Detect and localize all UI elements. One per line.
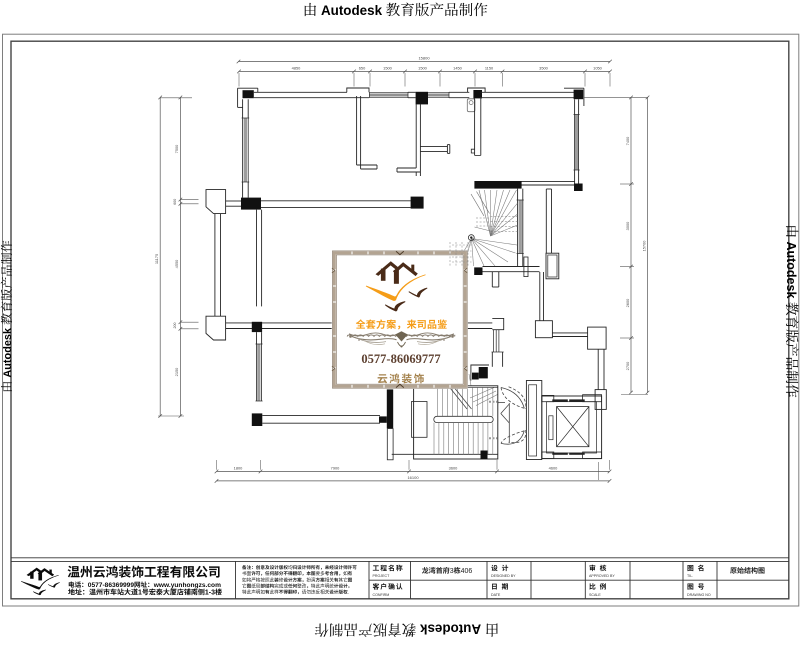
svg-text:全套方案，来司品鉴: 全套方案，来司品鉴 bbox=[356, 316, 448, 331]
svg-text:600: 600 bbox=[173, 199, 177, 205]
svg-text:设 计: 设 计 bbox=[491, 563, 509, 573]
svg-text:7900: 7900 bbox=[331, 466, 340, 471]
svg-text:4550: 4550 bbox=[174, 259, 179, 268]
svg-text:龙湾首府3栋406: 龙湾首府3栋406 bbox=[422, 566, 473, 576]
svg-text:7400: 7400 bbox=[625, 136, 630, 145]
svg-text:特此声明如有此样不得翻印，请勿违反相关设计版权.: 特此声明如有此样不得翻印，请勿违反相关设计版权. bbox=[242, 589, 349, 596]
svg-text:如将严格按照此装修设计方案，扮演方案相关有其它图: 如将严格按照此装修设计方案，扮演方案相关有其它图 bbox=[242, 576, 353, 583]
svg-text:它图纸局部结构完成或任何整改，特此声明统计设计，: 它图纸局部结构完成或任何整改，特此声明统计设计， bbox=[242, 582, 352, 589]
svg-text:CONFIRM: CONFIRM bbox=[373, 593, 390, 597]
svg-text:DESIGNED BY: DESIGNED BY bbox=[491, 574, 516, 578]
svg-text:15700: 15700 bbox=[642, 240, 647, 252]
svg-text:地址：温州市车站大道1号宏泰大厦店铺南侧1-3楼: 地址：温州市车站大道1号宏泰大厦店铺南侧1-3楼 bbox=[68, 588, 222, 598]
svg-text:客户确认: 客户确认 bbox=[373, 581, 404, 591]
svg-text:3500: 3500 bbox=[539, 66, 548, 71]
svg-text:图 名: 图 名 bbox=[687, 563, 705, 573]
svg-text:原始结构图: 原始结构图 bbox=[730, 566, 765, 576]
svg-text:1450: 1450 bbox=[453, 66, 462, 71]
svg-text:DRAWING NO: DRAWING NO bbox=[687, 593, 711, 597]
svg-text:2600: 2600 bbox=[625, 298, 630, 307]
svg-text:7500: 7500 bbox=[174, 144, 179, 153]
svg-text:2150: 2150 bbox=[174, 367, 179, 376]
svg-text:1500: 1500 bbox=[418, 66, 427, 71]
svg-text:图 号: 图 号 bbox=[687, 581, 705, 591]
svg-text:APPROVED BY: APPROVED BY bbox=[589, 574, 615, 578]
svg-text:1050: 1050 bbox=[593, 66, 602, 71]
svg-text:TIL.: TIL. bbox=[687, 574, 693, 578]
svg-text:11175: 11175 bbox=[154, 254, 159, 264]
svg-text:PROJECT: PROJECT bbox=[373, 574, 391, 578]
svg-text:由 Autodesk 教育版产品制作: 由 Autodesk 教育版产品制作 bbox=[0, 240, 15, 392]
svg-text:4600: 4600 bbox=[549, 466, 558, 471]
svg-text:1500: 1500 bbox=[383, 66, 392, 71]
svg-text:1150: 1150 bbox=[485, 66, 494, 71]
svg-text:审 核: 审 核 bbox=[589, 563, 607, 573]
svg-text:4850: 4850 bbox=[292, 66, 301, 71]
svg-text:由 Autodesk 教育版产品制作: 由 Autodesk 教育版产品制作 bbox=[314, 620, 499, 640]
svg-text:SCALE: SCALE bbox=[589, 593, 601, 597]
svg-text:3000: 3000 bbox=[625, 221, 630, 230]
svg-text:0577-86069777: 0577-86069777 bbox=[361, 352, 440, 366]
svg-text:工程名称: 工程名称 bbox=[373, 563, 404, 573]
svg-text:比 例: 比 例 bbox=[589, 581, 607, 591]
svg-text:200: 200 bbox=[173, 323, 177, 329]
svg-text:备注：创意及设计版权均归设计师所有，未经设计师许可: 备注：创意及设计版权均归设计师所有，未经设计师许可 bbox=[242, 564, 357, 571]
svg-text:650: 650 bbox=[359, 66, 366, 71]
svg-text:云鸿装饰: 云鸿装饰 bbox=[377, 371, 426, 386]
svg-text:3600: 3600 bbox=[449, 466, 458, 471]
svg-text:由 Autodesk 教育版产品制作: 由 Autodesk 教育版产品制作 bbox=[783, 224, 800, 398]
svg-text:DATE: DATE bbox=[491, 593, 501, 597]
svg-text:1800: 1800 bbox=[234, 466, 243, 471]
svg-text:书面许可，任何部分不得翻印，本图要多考合用，如有: 书面许可，任何部分不得翻印，本图要多考合用，如有 bbox=[242, 570, 353, 577]
svg-text:2700: 2700 bbox=[625, 361, 630, 370]
svg-text:15800: 15800 bbox=[418, 55, 430, 60]
svg-text:日 期: 日 期 bbox=[491, 581, 509, 591]
svg-text:16100: 16100 bbox=[407, 475, 419, 480]
svg-text:由 Autodesk 教育版产品制作: 由 Autodesk 教育版产品制作 bbox=[303, 0, 488, 20]
svg-text:温州云鸿装饰工程有限公司: 温州云鸿装饰工程有限公司 bbox=[67, 561, 221, 580]
